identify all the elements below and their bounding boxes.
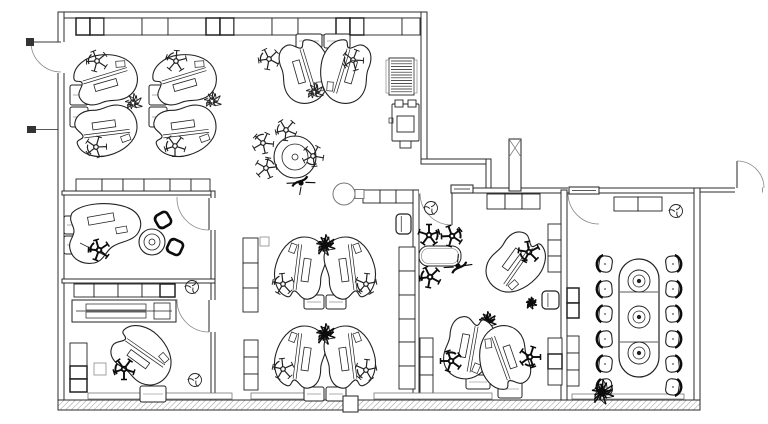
cabinet — [614, 197, 638, 211]
cabinet — [548, 354, 562, 369]
cabinet — [104, 18, 142, 35]
cabinet — [70, 379, 87, 392]
wall — [62, 279, 215, 283]
conference-table — [619, 259, 659, 377]
wall — [60, 12, 427, 18]
cabinet — [402, 18, 420, 35]
storage-box — [542, 291, 559, 309]
cabinet — [70, 343, 87, 366]
cabinet — [399, 271, 415, 295]
door-opening — [419, 187, 452, 194]
round-table — [139, 229, 165, 255]
cabinet — [567, 336, 579, 353]
cabinet — [567, 288, 579, 303]
conference-chair — [596, 355, 613, 374]
column — [343, 396, 358, 412]
cabinet — [168, 18, 206, 35]
conference-chair — [596, 280, 613, 298]
cabinet — [70, 366, 87, 379]
wall — [694, 188, 700, 410]
column — [509, 139, 521, 191]
cabinet — [160, 284, 175, 297]
cabinet — [244, 357, 258, 374]
cabinet — [567, 303, 579, 318]
cabinet — [272, 18, 298, 35]
cabinet — [102, 179, 123, 191]
cabinet — [548, 224, 561, 240]
conference-chair — [665, 305, 682, 323]
cabinet — [90, 18, 104, 35]
cabinet — [74, 284, 94, 297]
cabinet — [244, 340, 258, 357]
cabinet — [142, 284, 160, 297]
cabinet — [420, 338, 433, 357]
counter-desk — [419, 246, 461, 266]
cabinet — [123, 179, 144, 191]
floorplan-page — [0, 0, 768, 424]
cabinet — [234, 18, 272, 35]
cabinet — [350, 18, 364, 35]
cabinet — [170, 179, 191, 191]
cabinet — [548, 338, 562, 354]
cabinet — [399, 247, 415, 271]
cabinet — [522, 194, 540, 209]
door-opening — [210, 198, 216, 230]
cabinet — [94, 284, 118, 297]
cabinet — [548, 240, 561, 256]
cabinet — [567, 353, 579, 370]
cabinet — [191, 179, 210, 191]
cabinet — [380, 190, 396, 203]
cabinet — [487, 194, 505, 209]
cabinet — [336, 18, 350, 35]
door-leaf-cap — [26, 38, 34, 46]
wall — [486, 159, 491, 192]
wall — [62, 191, 215, 195]
storage-box — [396, 214, 411, 234]
cabinet — [399, 366, 415, 389]
window-sill — [572, 394, 684, 399]
printer — [389, 100, 419, 148]
door-opening — [735, 187, 762, 193]
cabinet — [399, 319, 415, 342]
cabinet — [399, 342, 415, 366]
cabinet — [399, 295, 415, 319]
conference-chair — [665, 355, 682, 374]
desk-pedestal — [140, 386, 166, 402]
window-sill — [374, 393, 492, 399]
radiator-shelf — [386, 58, 417, 95]
conference-chair — [596, 305, 613, 323]
cabinet — [364, 18, 402, 35]
cabinet — [420, 375, 433, 394]
door-opening — [57, 42, 65, 73]
cabinet — [220, 18, 234, 35]
cabinet — [243, 263, 258, 288]
door-opening — [210, 300, 216, 332]
cabinet — [396, 190, 413, 203]
wall — [421, 12, 427, 164]
cabinet — [548, 369, 562, 385]
cabinet — [420, 357, 433, 375]
cabinet — [243, 238, 258, 263]
cabinet — [76, 18, 90, 35]
cabinet — [505, 194, 522, 209]
credenza — [72, 300, 176, 322]
cabinet — [567, 370, 579, 386]
cabinet — [142, 18, 168, 35]
cabinet — [144, 179, 170, 191]
office-floorplan-drawing — [0, 0, 768, 424]
conference-chair — [665, 330, 682, 349]
cabinet — [206, 18, 220, 35]
wall — [421, 159, 491, 164]
conference-chair — [596, 330, 613, 349]
desk-pedestal — [304, 387, 324, 401]
cabinet — [298, 18, 336, 35]
cabinet — [363, 190, 380, 203]
cabinet — [638, 197, 662, 211]
cabinet — [118, 284, 142, 297]
conference-chair — [665, 280, 682, 298]
cabinet — [76, 179, 102, 191]
cabinet — [243, 288, 258, 312]
cabinet — [244, 374, 258, 390]
cabinet — [548, 256, 561, 272]
